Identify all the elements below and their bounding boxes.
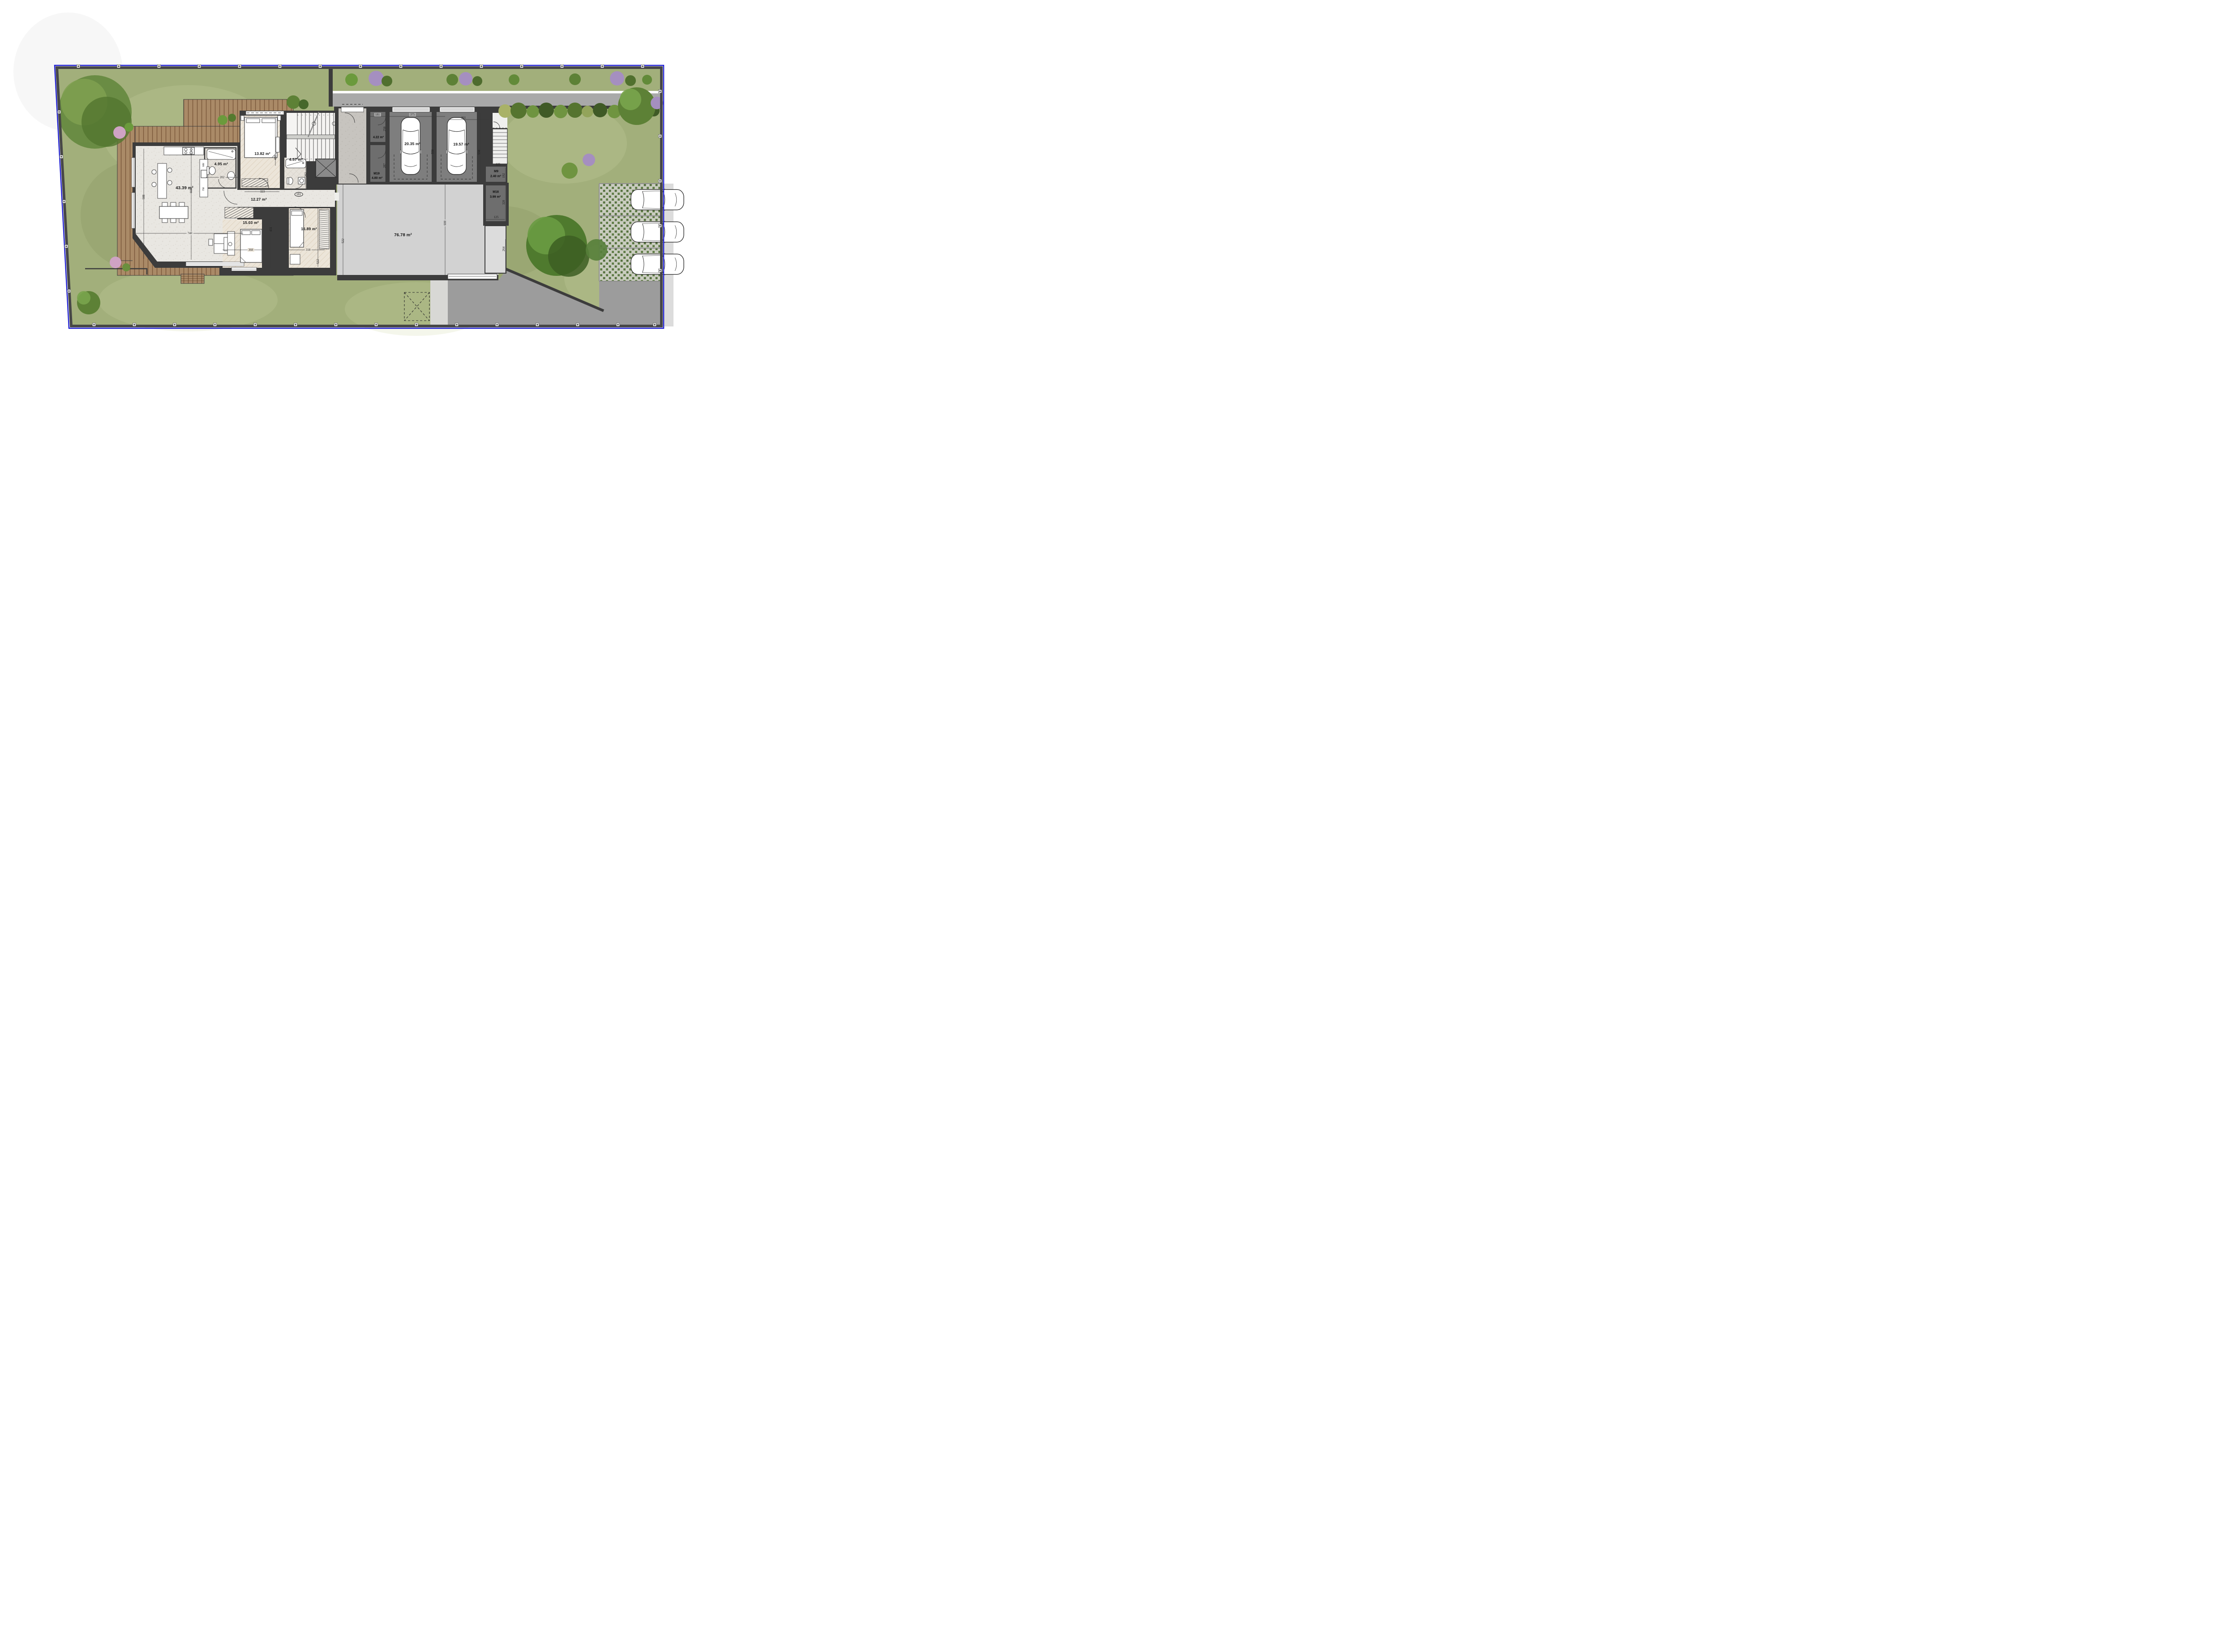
floor-m9 [486,167,506,182]
stair-step-17: 17 [327,158,329,160]
stair-step-3: 3 [323,114,324,116]
stair-step-18: 18 [332,158,334,160]
door-hall-corridor [335,193,339,201]
wardrobe-bedroom1 [242,179,268,187]
window-living-south [186,262,244,266]
stair-step-11: 11 [302,158,303,160]
window-west-2 [132,193,135,228]
elevator-shaft [316,159,336,177]
stair-step-2: 2 [328,114,329,116]
floor-corridor [339,108,366,184]
plan-drawing [0,0,693,413]
window-bedroom2-south [232,267,257,271]
stair-step-1: 1 [332,114,333,116]
parked-car-3 [631,252,684,276]
pocket-sw [485,226,506,273]
stair-step-5: 5 [315,114,316,116]
stair-step-16: 16 [323,158,325,160]
garage-door-2 [440,107,475,112]
stair-step-6: 6 [310,114,311,116]
exterior-stair [493,128,507,164]
floor-m18 [486,185,506,221]
garage-car-2 [445,117,468,174]
window-west-1 [132,158,135,187]
garage-door-1 [392,107,430,112]
deck-steps [181,274,204,283]
stair-step-4: 4 [319,114,320,116]
stair-step-12: 12 [306,158,308,160]
stair-step-15: 15 [319,158,321,160]
dining-set [159,202,188,223]
stair-step-8: 8 [302,114,303,116]
stair-step-9: 9 [297,114,298,116]
stair-step-13: 13 [310,158,312,160]
stair-step-14: 14 [315,158,317,160]
closet-bedroom3 [319,210,329,249]
garage-car-1 [399,117,422,174]
parked-car-2 [631,219,684,244]
floor-hall [225,190,335,207]
stair-step-10: 10 [297,158,299,160]
courtyard-paving [337,184,498,280]
terrace-door [246,111,284,115]
site-plan: 43.39 m² 12.27 m² 13.82 m² 4.95 m² 4.57 … [0,0,693,413]
parking-stalls [599,184,684,281]
floor-m19 [370,145,386,182]
bed-bedroom1 [241,116,281,158]
wardrobe-bedroom2 [225,207,253,218]
parked-car-1 [631,187,684,212]
stair-step-7: 7 [306,114,307,116]
